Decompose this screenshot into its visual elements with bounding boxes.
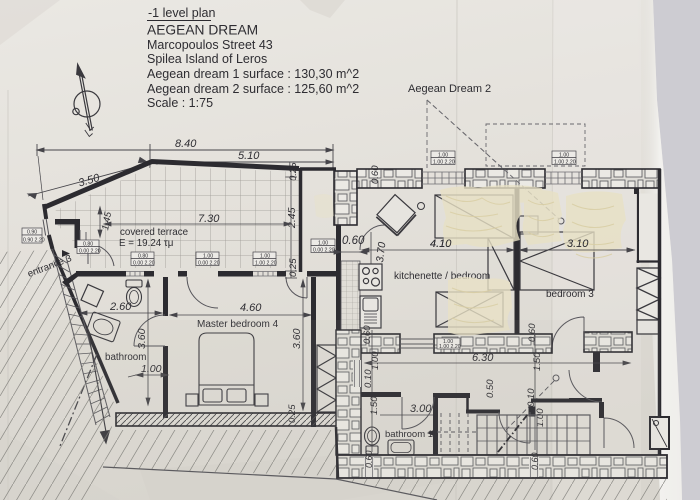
svg-text:0.00 2.20: 0.00 2.20 (133, 261, 155, 267)
svg-text:0.90 2.20: 0.90 2.20 (23, 238, 45, 244)
svg-text:Spilea Island of Leros: Spilea Island of Leros (147, 52, 267, 66)
svg-text:7.30: 7.30 (198, 213, 220, 225)
svg-text:5.10: 5.10 (238, 150, 260, 162)
svg-text:-1 level plan: -1 level plan (148, 6, 215, 20)
svg-text:AEGEAN DREAM: AEGEAN DREAM (147, 23, 258, 38)
svg-text:0.00 2.20: 0.00 2.20 (313, 248, 335, 254)
svg-text:0.80: 0.80 (83, 242, 93, 248)
svg-text:0.60: 0.60 (342, 235, 365, 247)
svg-text:0.80: 0.80 (138, 254, 148, 260)
svg-text:1.00: 1.00 (203, 254, 213, 260)
svg-text:covered terrace: covered terrace (120, 227, 189, 238)
svg-text:Aegean dream 2 surface : 125,6: Aegean dream 2 surface : 125,60 m^2 (147, 82, 359, 96)
svg-text:1.00: 1.00 (559, 153, 569, 159)
svg-text:4.10: 4.10 (430, 238, 452, 250)
svg-text:1.00: 1.00 (318, 241, 328, 247)
svg-text:Scale : 1:75: Scale : 1:75 (147, 96, 213, 110)
svg-text:0.90: 0.90 (27, 230, 37, 236)
svg-text:0.00 2.20: 0.00 2.20 (198, 261, 220, 267)
svg-text:0.60: 0.60 (370, 165, 381, 184)
svg-text:1.00: 1.00 (438, 153, 448, 159)
svg-text:3.10: 3.10 (567, 238, 589, 250)
svg-text:Marcopoulos Street 43: Marcopoulos Street 43 (147, 38, 273, 52)
svg-text:1.00 2.20: 1.00 2.20 (433, 160, 455, 166)
svg-text:bedroom 3: bedroom 3 (546, 289, 594, 300)
svg-text:8.40: 8.40 (175, 138, 197, 150)
svg-text:Aegean dream 1 surface : 130,3: Aegean dream 1 surface : 130,30 m^2 (147, 67, 359, 81)
svg-text:1.00 2.20: 1.00 2.20 (255, 261, 277, 267)
svg-text:0.00 2.20: 0.00 2.20 (79, 249, 101, 255)
svg-text:1.00 2.20: 1.00 2.20 (554, 160, 576, 166)
svg-text:2.60: 2.60 (109, 301, 132, 313)
svg-text:4.60: 4.60 (240, 302, 262, 314)
svg-text:Aegean Dream 2: Aegean Dream 2 (408, 83, 491, 95)
svg-text:3.70: 3.70 (374, 241, 388, 263)
svg-text:1.00: 1.00 (260, 254, 270, 260)
svg-text:E = 19.24 τμ: E = 19.24 τμ (119, 238, 173, 249)
